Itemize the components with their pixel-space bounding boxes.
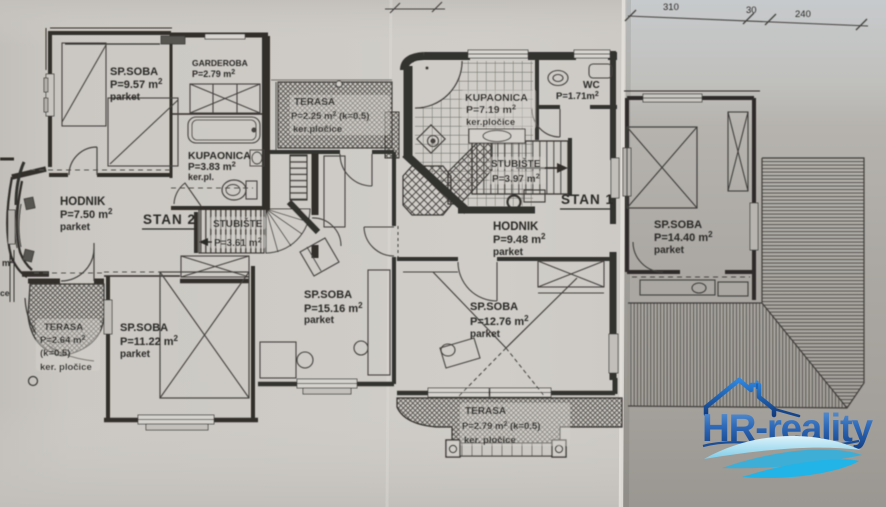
svg-text:KUPAONICA: KUPAONICA [465,92,528,104]
svg-text:SP.SOBA: SP.SOBA [110,66,158,78]
svg-text:ker.pločice: ker.pločice [466,117,515,128]
svg-text:SP.SOBA: SP.SOBA [654,219,702,231]
svg-text:P=15.16 m2: P=15.16 m2 [304,301,363,315]
svg-text:P=2.64 m2: P=2.64 m2 [40,335,85,346]
svg-text:GARDEROBA: GARDEROBA [192,58,248,68]
svg-text:TERASA: TERASA [294,97,335,108]
svg-text:P=7.50 m2: P=7.50 m2 [60,207,113,221]
svg-text:STAN 2: STAN 2 [143,212,196,227]
svg-text:P=3.83 m2: P=3.83 m2 [188,160,236,174]
svg-text:KUPAONICA: KUPAONICA [188,150,251,162]
svg-text:310: 310 [663,2,679,13]
svg-text:P=1.71m2: P=1.71m2 [556,91,599,102]
svg-text:(k=0.5): (k=0.5) [40,348,70,359]
svg-text:P=14.40 m2: P=14.40 m2 [654,230,713,244]
svg-text:SP.SOBA: SP.SOBA [470,301,518,313]
svg-text:P=12.76 m2: P=12.76 m2 [470,314,529,328]
svg-text:parket: parket [470,329,501,340]
svg-text:P=2.79 m2 (k=0.5): P=2.79 m2 (k=0.5) [462,421,540,432]
svg-text:SP.SOBA: SP.SOBA [304,289,352,301]
svg-text:STUBIŠTE: STUBIŠTE [491,157,541,170]
svg-text:ker. pločice: ker. pločice [464,435,516,446]
svg-text:P=2.25 m2 (k=0.5): P=2.25 m2 (k=0.5) [291,111,369,122]
svg-text:240: 240 [795,9,811,20]
svg-text:parket: parket [120,349,151,360]
svg-text:TERASA: TERASA [465,406,506,417]
svg-text:P=11.22 m2: P=11.22 m2 [120,334,179,348]
svg-text:STUBIŠTE: STUBIŠTE [213,217,263,230]
svg-text:P=9.48 m2: P=9.48 m2 [493,232,546,246]
svg-text:parket: parket [493,247,524,258]
svg-text:parket: parket [304,315,335,326]
svg-text:STAN 1: STAN 1 [561,192,614,207]
svg-text:parket: parket [654,245,685,256]
svg-text:P=3.61 m2: P=3.61 m2 [214,236,262,250]
svg-text:P=9.57 m2: P=9.57 m2 [110,77,163,91]
svg-text:P=7.19 m2: P=7.19 m2 [466,103,516,117]
svg-text:parket: parket [110,92,141,103]
svg-text:parket: parket [60,222,91,233]
svg-text:HODNIK: HODNIK [493,221,539,233]
svg-text:30: 30 [746,5,757,16]
svg-text:P=3.97 m2: P=3.97 m2 [492,172,540,186]
svg-text:ker.pl.: ker.pl. [188,172,214,182]
svg-text:HODNIK: HODNIK [60,196,106,208]
svg-text:ce: ce [0,288,10,298]
svg-text:P=2.79 m2: P=2.79 m2 [192,69,235,79]
svg-text:SP.SOBA: SP.SOBA [120,322,168,334]
svg-text:WC: WC [583,80,600,91]
svg-text:ker.pločice: ker.pločice [293,124,342,135]
svg-text:TERASA: TERASA [44,322,83,333]
svg-text:ker. pločice: ker. pločice [40,362,92,373]
